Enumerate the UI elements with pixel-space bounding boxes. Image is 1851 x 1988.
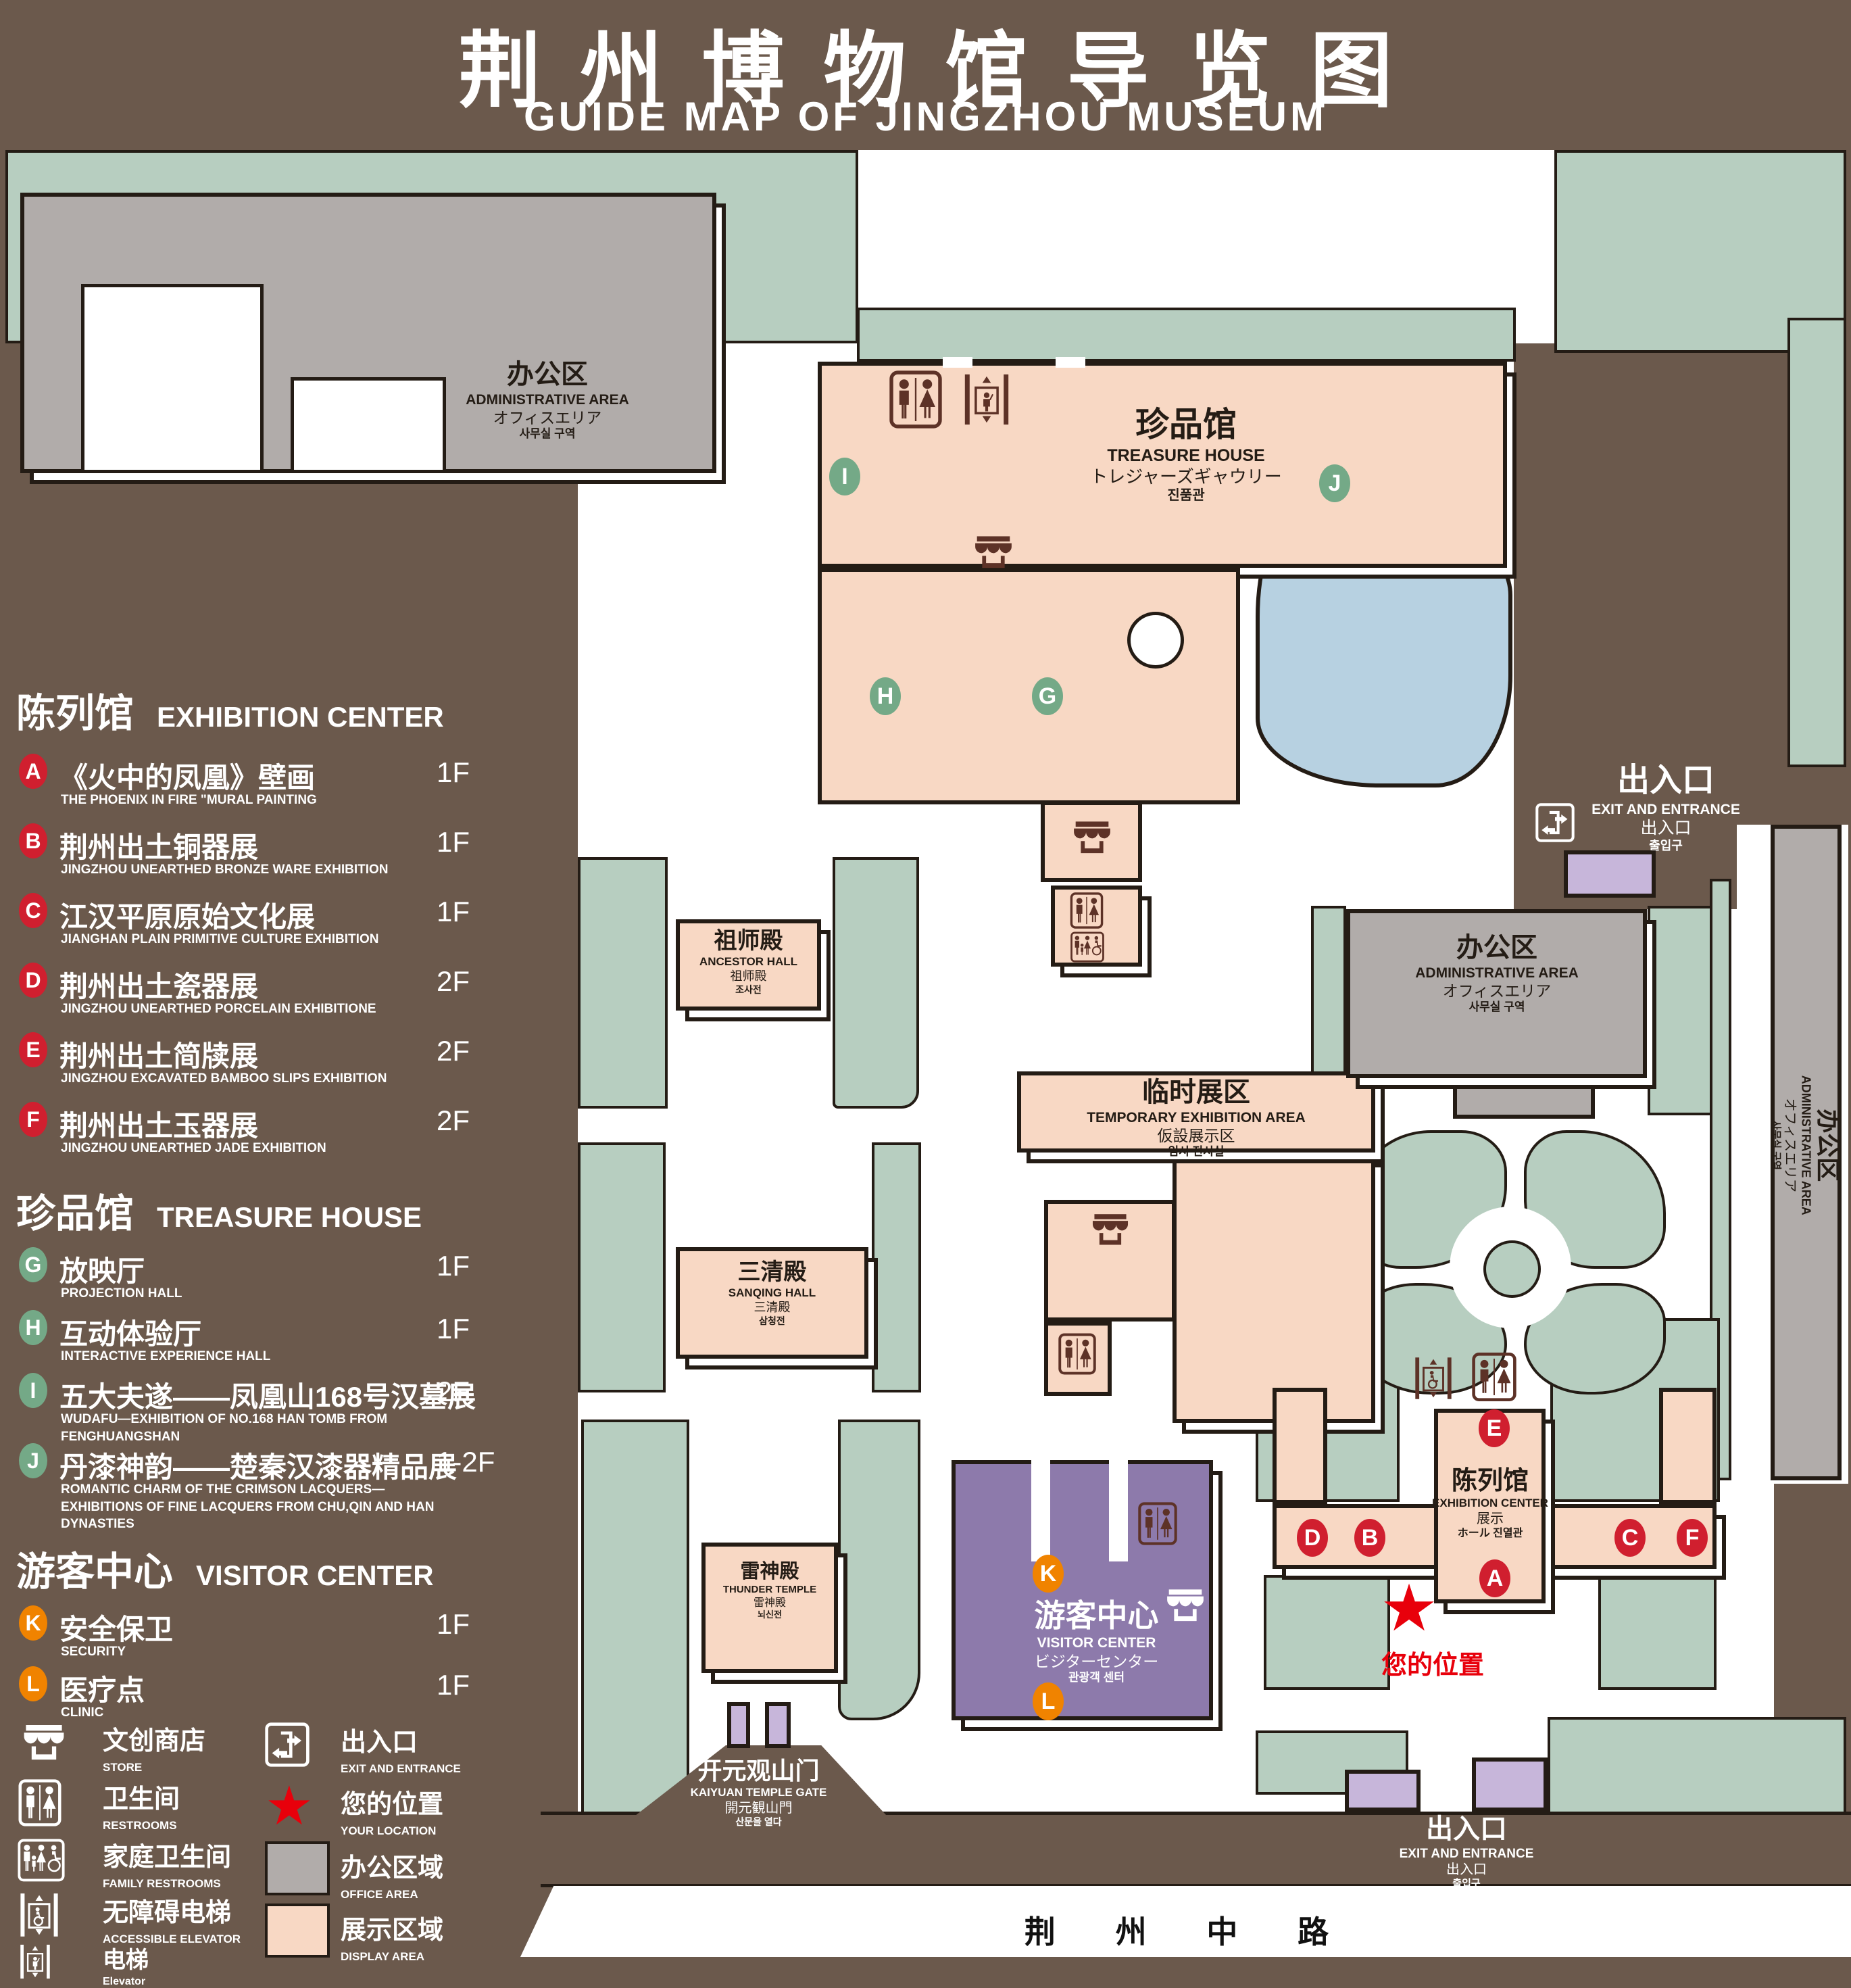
store-icon — [1164, 1587, 1207, 1626]
gate-pillar — [765, 1702, 791, 1748]
label-exit-bottom: 出入口 EXIT AND ENTRANCE 出入口 출입구 — [1379, 1813, 1554, 1891]
building-exhibition-arm-right — [1659, 1388, 1717, 1504]
legend-item-D: D 荆州出土瓷器展 2F JINGZHOU UNEARTHED PORCELAI… — [19, 963, 512, 1030]
exit-icon — [1535, 802, 1575, 844]
exit-icon — [265, 1722, 310, 1767]
family-restrooms-icon — [1062, 931, 1112, 963]
lawn — [578, 1142, 666, 1392]
building-exit-right-booth — [1564, 850, 1656, 898]
lawn — [1787, 318, 1846, 767]
rotunda — [1127, 612, 1184, 669]
map-marker-H: H — [870, 677, 901, 715]
door-gap — [1056, 357, 1085, 368]
garden-island — [1483, 1240, 1541, 1298]
map-marker-L: L — [1033, 1682, 1064, 1720]
road-name: 荆 州 中 路 — [892, 1908, 1487, 1952]
legend-item-B: B 荆州出土铜器展 1F JINGZHOU UNEARTHED BRONZE W… — [19, 823, 512, 891]
legend-item-I: I 五大夫遂——凤凰山168号汉墓展 2F WUDAFU—EXHIBITION … — [19, 1373, 512, 1440]
door-gap — [943, 357, 972, 368]
courtyard — [81, 284, 264, 473]
elevator-icon — [963, 370, 1010, 429]
page-subtitle: GUIDE MAP OF JINGZHOU MUSEUM — [0, 93, 1851, 140]
building-temporary-exhibition-wing — [1173, 1153, 1375, 1423]
label-admin-top-left: 办公区 ADMINISTRATIVE AREA オフィスエリア 사무실 구역 — [378, 358, 716, 441]
building-bottom-exit-booth — [1345, 1770, 1421, 1812]
store-icon — [972, 534, 1015, 573]
your-location-text: 您的位置 — [1341, 1644, 1524, 1681]
restrooms-icon — [18, 1779, 62, 1826]
legend-header-exhibition-center: 陈列馆EXHIBITION CENTER — [16, 681, 444, 738]
lawn — [857, 308, 1516, 362]
map-marker-C: C — [1614, 1519, 1646, 1557]
restrooms-icon — [1472, 1349, 1516, 1405]
label-temporary-exhibition: 临时展区 TEMPORARY EXHIBITION AREA 仮設展示区 임시 … — [1027, 1076, 1365, 1159]
building-exhibition-arm-left — [1273, 1388, 1327, 1504]
label-exhibition-center: 陈列馆 EXHIBITION CENTER 展示 ホール 진열관 — [1409, 1465, 1571, 1541]
restrooms-icon — [1058, 1333, 1096, 1375]
office-area-swatch — [265, 1841, 330, 1895]
elevator-icon — [19, 1944, 51, 1979]
label-sanqing-hall: 三清殿 SANQING HALL 三清殿 삼청전 — [676, 1259, 868, 1327]
map-marker-D: D — [1297, 1519, 1328, 1557]
lawn — [833, 857, 919, 1109]
legend-header-visitor-center: 游客中心VISITOR CENTER — [16, 1540, 434, 1597]
building-bottom-exit-booth — [1472, 1757, 1548, 1812]
restrooms-icon — [1066, 892, 1107, 929]
map-marker-K: K — [1033, 1555, 1064, 1593]
store-icon — [1070, 819, 1114, 858]
label-admin-right-strip: 办公区 ADMINISTRATIVE AREA オフィスエリア 사무실 구역 — [1769, 963, 1843, 1328]
legend-item-K: K 安全保卫 1F SECURITY — [19, 1605, 512, 1673]
restrooms-icon — [889, 370, 943, 429]
accessible-elevator-icon — [1414, 1351, 1453, 1406]
label-kaiyuan-gate: 开元观山门 KAIYUAN TEMPLE GATE 開元観山門 산문을 열다 — [642, 1756, 875, 1828]
family-restrooms-icon — [16, 1839, 66, 1882]
legend-item-E: E 荆州出土简牍展 2F JINGZHOU EXCAVATED BAMBOO S… — [19, 1032, 512, 1100]
path-slot — [1109, 1455, 1128, 1561]
restrooms-icon — [1138, 1502, 1177, 1545]
map-marker-E: E — [1479, 1409, 1510, 1447]
label-ancestor-hall: 祖师殿 ANCESTOR HALL 祖师殿 조사전 — [672, 927, 824, 996]
map-marker-G: G — [1032, 677, 1063, 715]
legend-item-H: H 互动体验厅 1F INTERACTIVE EXPERIENCE HALL — [19, 1310, 512, 1378]
legend-item-J: J 丹漆神韵——楚秦汉漆器精品展 1-2F ROMANTIC CHARM OF … — [19, 1443, 512, 1511]
map-marker-A: A — [1479, 1559, 1510, 1597]
label-admin-mid-right: 办公区 ADMINISTRATIVE AREA オフィスエリア 사무실 구역 — [1348, 931, 1646, 1015]
legend-item-C: C 江汉平原原始文化展 1F JIANGHAN PLAIN PRIMITIVE … — [19, 893, 512, 961]
map-marker-I: I — [829, 458, 860, 495]
legend-item-G: G 放映厅 1F PROJECTION HALL — [19, 1247, 512, 1315]
legend-item-F: F 荆州出土玉器展 2F JINGZHOU UNEARTHED JADE EXH… — [19, 1102, 512, 1169]
lawn — [872, 1142, 921, 1392]
label-exit-right: 出入口 EXIT AND ENTRANCE 出入口 출입구 — [1588, 761, 1744, 854]
display-area-swatch — [265, 1904, 330, 1958]
store-icon — [20, 1722, 68, 1766]
label-thunder-temple: 雷神殿 THUNDER TEMPLE 雷神殿 뇌신전 — [701, 1560, 838, 1620]
your-location-star-icon: ★ — [1380, 1576, 1438, 1641]
guide-map-page: 荆州博物馆导览图 GUIDE MAP OF JINGZHOU MUSEUM 办公… — [0, 0, 1851, 1979]
location-star-icon: ★ — [265, 1779, 314, 1833]
building-admin-mid-tab — [1453, 1078, 1595, 1119]
legend-item-A: A 《火中的凤凰》壁画 1F THE PHOENIX IN FIRE "MURA… — [19, 754, 512, 821]
map-marker-B: B — [1354, 1519, 1385, 1557]
lawn — [578, 857, 668, 1109]
lawn — [838, 1420, 920, 1720]
legend-header-treasure-house: 珍品馆TREASURE HOUSE — [16, 1182, 422, 1238]
map-marker-F: F — [1677, 1519, 1708, 1557]
path-slot — [1031, 1455, 1050, 1561]
gate-pillar — [727, 1702, 750, 1748]
accessible-elevator-icon — [19, 1893, 59, 1937]
lawn — [1598, 1575, 1717, 1690]
store-icon — [1089, 1212, 1131, 1250]
map-marker-J: J — [1319, 464, 1350, 502]
